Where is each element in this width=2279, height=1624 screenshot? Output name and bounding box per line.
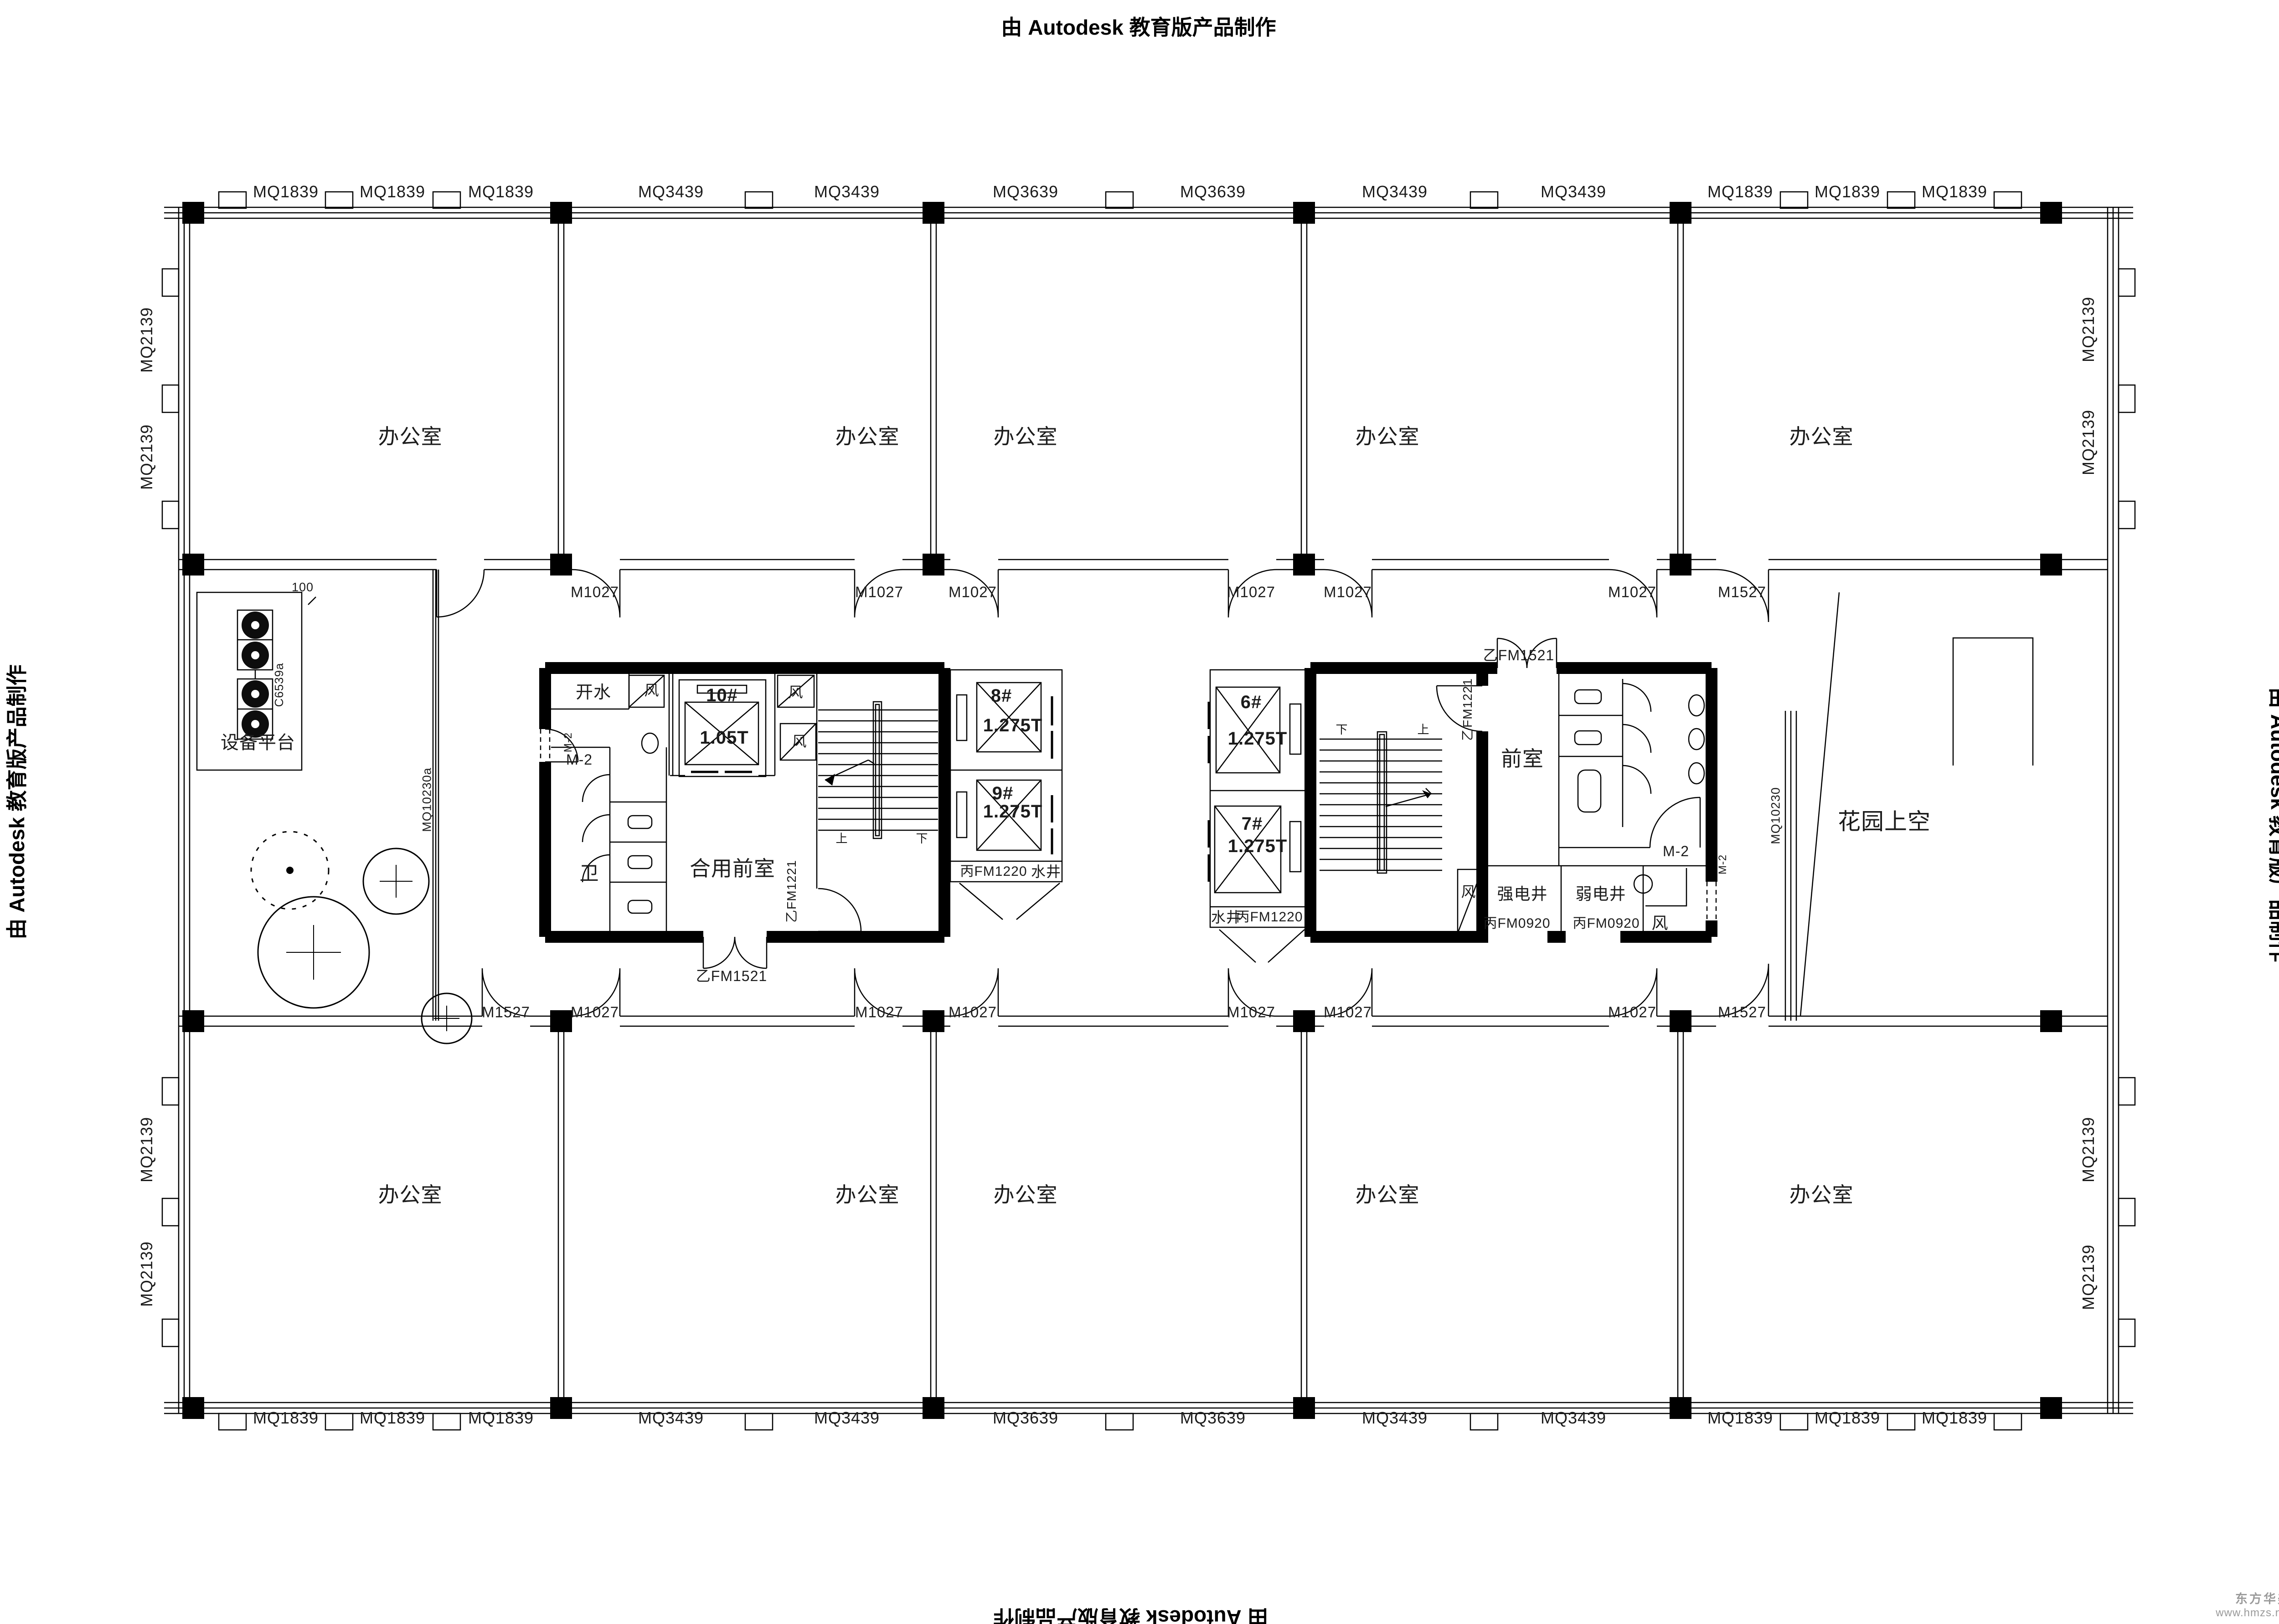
- room-label-office: 办公室: [1789, 1184, 1854, 1205]
- room-label-office: 办公室: [1789, 426, 1854, 447]
- window-tag: MQ1839: [468, 1410, 534, 1426]
- window-tag: C6539a: [273, 663, 285, 707]
- door-tag: M1027: [855, 585, 903, 600]
- garden-void: [1785, 592, 2033, 1021]
- window-tag: MQ1839: [1707, 184, 1773, 200]
- door-tag: M1027: [571, 1005, 619, 1020]
- window-tag: MQ3439: [814, 1410, 880, 1426]
- corridor-wall-top: [179, 560, 2108, 570]
- room-label-lobby: 前室: [1501, 748, 1544, 769]
- room-label-shared-lobby: 合用前室: [690, 858, 775, 879]
- window-tag: MQ3439: [1541, 184, 1606, 200]
- window-tag: MQ3639: [993, 184, 1058, 200]
- door-tag: M1027: [1227, 585, 1275, 600]
- room-label-hotwater: 开水: [576, 684, 611, 701]
- window-tag: MQ2139: [139, 1117, 155, 1182]
- window-tag: MQ1839: [360, 184, 425, 200]
- window-tag: MQ3439: [1362, 184, 1428, 200]
- window-tag: MQ2139: [139, 424, 155, 490]
- elevator-id: 10#: [706, 686, 738, 704]
- left-core-walls: [545, 668, 944, 937]
- door-tag: M1027: [1608, 585, 1656, 600]
- window-tag: MQ2139: [139, 307, 155, 373]
- corridor-wall-bottom: [179, 1016, 2108, 1026]
- door-tag: M1027: [949, 585, 997, 600]
- room-label-garden: 花园上空: [1838, 810, 1931, 833]
- equipment-platform: [197, 570, 438, 1021]
- door-tag: M1027: [1608, 1005, 1656, 1020]
- fire-door-tag: 乙FM1221: [785, 860, 798, 923]
- window-tag: MQ2139: [2080, 1244, 2097, 1310]
- window-tag: MQ3639: [1180, 1410, 1246, 1426]
- window-tag: MQ1839: [360, 1410, 425, 1426]
- exterior-wall-left: [179, 207, 190, 1413]
- elevator-load: 1.275T: [1228, 837, 1288, 855]
- room-label-office: 办公室: [378, 1184, 443, 1205]
- window-tag: MQ1839: [253, 184, 319, 200]
- elevator-load: 1.275T: [983, 802, 1043, 821]
- floor-plan-drawing: [0, 0, 2279, 1624]
- door-tag: M1027: [855, 1005, 903, 1020]
- elevator-id: 8#: [991, 687, 1012, 705]
- elevator-load: 1.275T: [983, 716, 1043, 735]
- door-tag: M-2: [563, 732, 574, 752]
- door-tag: M1027: [1324, 585, 1372, 600]
- window-tag: MQ3439: [1362, 1410, 1428, 1426]
- dimension: 100: [292, 581, 314, 594]
- elevator-load: 1.05T: [700, 729, 748, 747]
- elevator-id: 6#: [1241, 693, 1262, 711]
- shaft-label-vent: 风: [1651, 915, 1668, 931]
- watermark: 东方华美 www.hmzs.net: [2216, 1589, 2279, 1619]
- fire-door-tag: 丙FM1220: [960, 865, 1027, 879]
- window-tag: MQ3639: [993, 1410, 1058, 1426]
- fire-door-tag: 乙FM1221: [1461, 678, 1474, 741]
- shaft-label-vent: 风: [644, 683, 659, 698]
- room-label-office: 办公室: [994, 426, 1058, 447]
- shaft-label-vent: 风: [788, 685, 803, 699]
- window-tag: MQ10230a: [421, 767, 433, 832]
- exterior-wall-right: [2108, 207, 2119, 1413]
- window-tag: MQ1839: [1815, 1410, 1880, 1426]
- window-tag: MQ1839: [1922, 184, 1987, 200]
- elevator-id: 9#: [992, 784, 1014, 802]
- room-label-toilet: 卫: [579, 864, 599, 883]
- window-tag: MQ3439: [638, 184, 704, 200]
- window-tag: MQ10230: [1770, 787, 1782, 844]
- elevator-id: 7#: [1242, 815, 1263, 833]
- window-tag: MQ3639: [1180, 184, 1246, 200]
- door-tag: M1027: [1324, 1005, 1372, 1020]
- window-tag: MQ2139: [139, 1241, 155, 1307]
- room-label-office: 办公室: [835, 426, 900, 447]
- floor-plan-sheet: 由 Autodesk 教育版产品制作 由 Autodesk 教育版产品制作 由 …: [0, 0, 2279, 1624]
- door-tag: M1527: [1718, 1005, 1766, 1020]
- door-tag: M1027: [1227, 1005, 1275, 1020]
- room-label-office: 办公室: [378, 426, 443, 447]
- autodesk-banner-bottom: 由 Autodesk 教育版产品制作: [993, 1604, 1268, 1624]
- door-tag: M-2: [566, 752, 593, 767]
- room-label-office: 办公室: [1356, 426, 1420, 447]
- door-tag: M-2: [1717, 854, 1728, 874]
- room-label-strong-elec: 强电井: [1497, 886, 1547, 902]
- stair-label-up: 上: [835, 833, 848, 844]
- window-tag: MQ2139: [2080, 297, 2097, 362]
- watermark-url: www.hmzs.net: [2216, 1607, 2279, 1619]
- shaft-label-vent: 风: [792, 734, 807, 749]
- autodesk-banner-left: 由 Autodesk 教育版产品制作: [0, 664, 31, 939]
- watermark-name: 东方华美: [2216, 1589, 2279, 1607]
- stair-label-down: 下: [916, 833, 928, 844]
- room-label-office: 办公室: [835, 1184, 900, 1205]
- autodesk-banner-top: 由 Autodesk 教育版产品制作: [1001, 11, 1276, 41]
- fire-door-tag: 乙FM1521: [696, 969, 767, 983]
- window-tag: MQ1839: [468, 184, 534, 200]
- window-tag: MQ3439: [1541, 1410, 1606, 1426]
- window-tag: MQ1839: [1815, 184, 1880, 200]
- door-tag: M1527: [482, 1005, 530, 1020]
- room-label-equipment: 设备平台: [221, 734, 295, 752]
- window-tag: MQ2139: [2080, 1117, 2097, 1182]
- door-tag: M1027: [571, 585, 619, 600]
- window-tag: MQ3439: [638, 1410, 704, 1426]
- left-core-interior: [541, 668, 938, 968]
- exterior-wall-top: [164, 207, 2133, 218]
- door-swings: [437, 570, 1769, 1016]
- office-partitions: [558, 218, 1683, 1403]
- room-label-water-shaft: 水井: [1031, 864, 1061, 879]
- window-tag: MQ1839: [253, 1410, 319, 1426]
- fire-door-tag: 丙FM0920: [1573, 917, 1640, 930]
- window-tag: MQ3439: [814, 184, 880, 200]
- door-tag: M-2: [1663, 844, 1689, 858]
- window-tag: MQ1839: [1922, 1410, 1987, 1426]
- stair-label-down: 下: [1335, 724, 1348, 735]
- autodesk-banner-right: 由 Autodesk 教育版产品制作: [2265, 687, 2279, 962]
- room-label-office: 办公室: [1356, 1184, 1420, 1205]
- fire-door-tag: 丙FM0920: [1483, 917, 1550, 930]
- stair-label-up: 上: [1417, 724, 1429, 735]
- window-tag: MQ1839: [1707, 1410, 1773, 1426]
- fire-door-tag: 丙FM1220: [1236, 910, 1303, 924]
- window-tag: MQ2139: [2080, 410, 2097, 475]
- shaft-label-vent: 风: [1461, 884, 1476, 899]
- fire-door-tag: 乙FM1521: [1483, 648, 1554, 663]
- room-label-weak-elec: 弱电井: [1575, 886, 1626, 902]
- door-tag: M1527: [1718, 585, 1766, 600]
- elevator-load: 1.275T: [1228, 730, 1288, 748]
- door-tag: M1027: [949, 1005, 997, 1020]
- room-label-office: 办公室: [994, 1184, 1058, 1205]
